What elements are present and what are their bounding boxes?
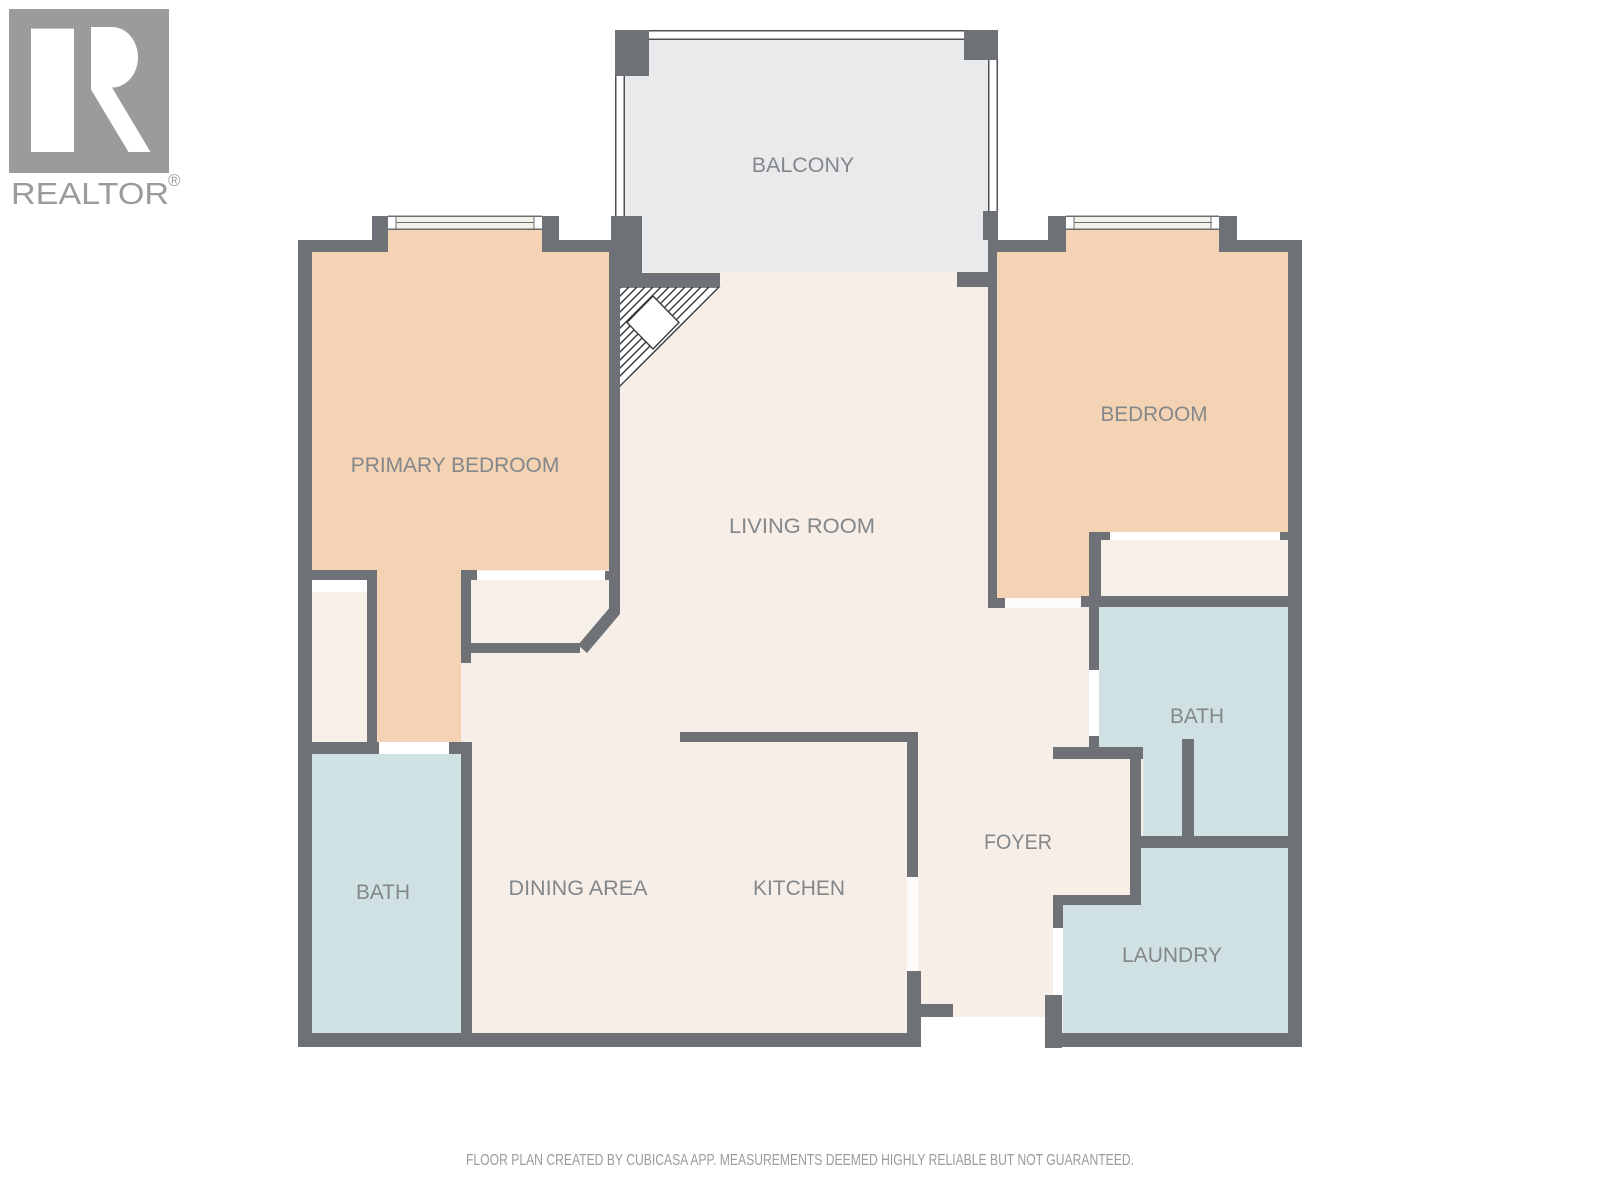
svg-text:®: ® [168, 171, 181, 190]
svg-text:LIVING ROOM: LIVING ROOM [729, 515, 875, 538]
svg-text:KITCHEN: KITCHEN [753, 877, 845, 900]
svg-text:FLOOR PLAN CREATED BY CUBICASA: FLOOR PLAN CREATED BY CUBICASA APP. MEAS… [466, 1152, 1134, 1169]
svg-text:LAUNDRY: LAUNDRY [1122, 944, 1222, 967]
svg-text:REALTOR: REALTOR [11, 176, 169, 211]
svg-text:BALCONY: BALCONY [752, 154, 855, 177]
svg-text:BATH: BATH [356, 881, 410, 904]
svg-text:PRIMARY BEDROOM: PRIMARY BEDROOM [351, 454, 560, 477]
svg-text:FOYER: FOYER [984, 831, 1052, 854]
svg-text:DINING AREA: DINING AREA [509, 877, 648, 900]
svg-text:BATH: BATH [1170, 705, 1224, 728]
svg-text:BEDROOM: BEDROOM [1101, 403, 1208, 426]
